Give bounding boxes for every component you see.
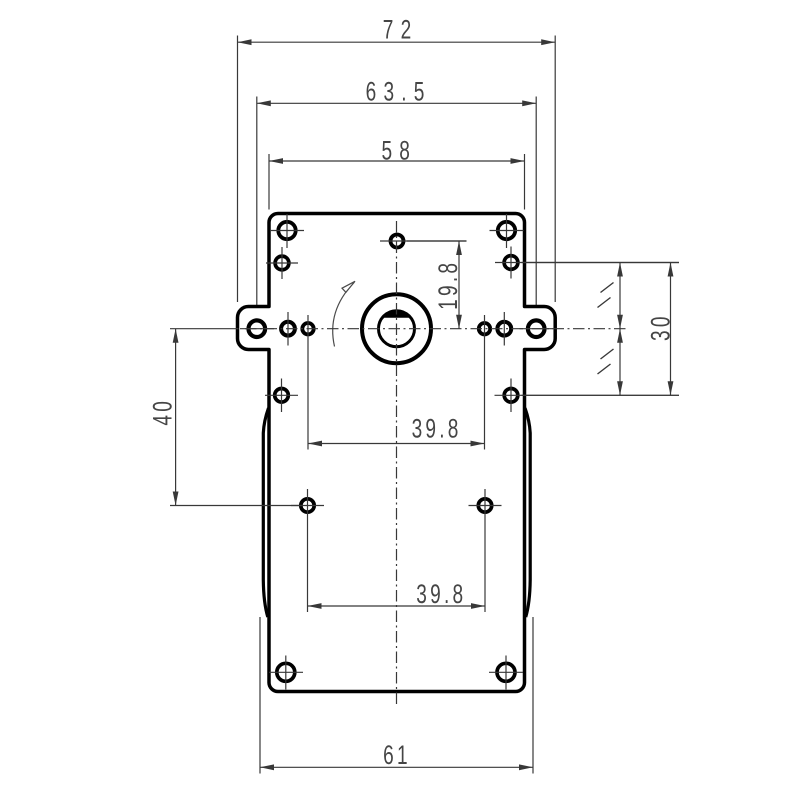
svg-text:40: 40 (148, 398, 178, 426)
svg-text:61: 61 (383, 740, 411, 770)
svg-text:19.8: 19.8 (433, 260, 463, 310)
svg-text:30: 30 (645, 313, 675, 341)
svg-text:39.8: 39.8 (416, 579, 466, 609)
svg-text:39.8: 39.8 (412, 413, 462, 443)
svg-text:63.5: 63.5 (366, 76, 432, 106)
svg-text:72: 72 (383, 14, 419, 44)
svg-text:58: 58 (381, 135, 417, 165)
